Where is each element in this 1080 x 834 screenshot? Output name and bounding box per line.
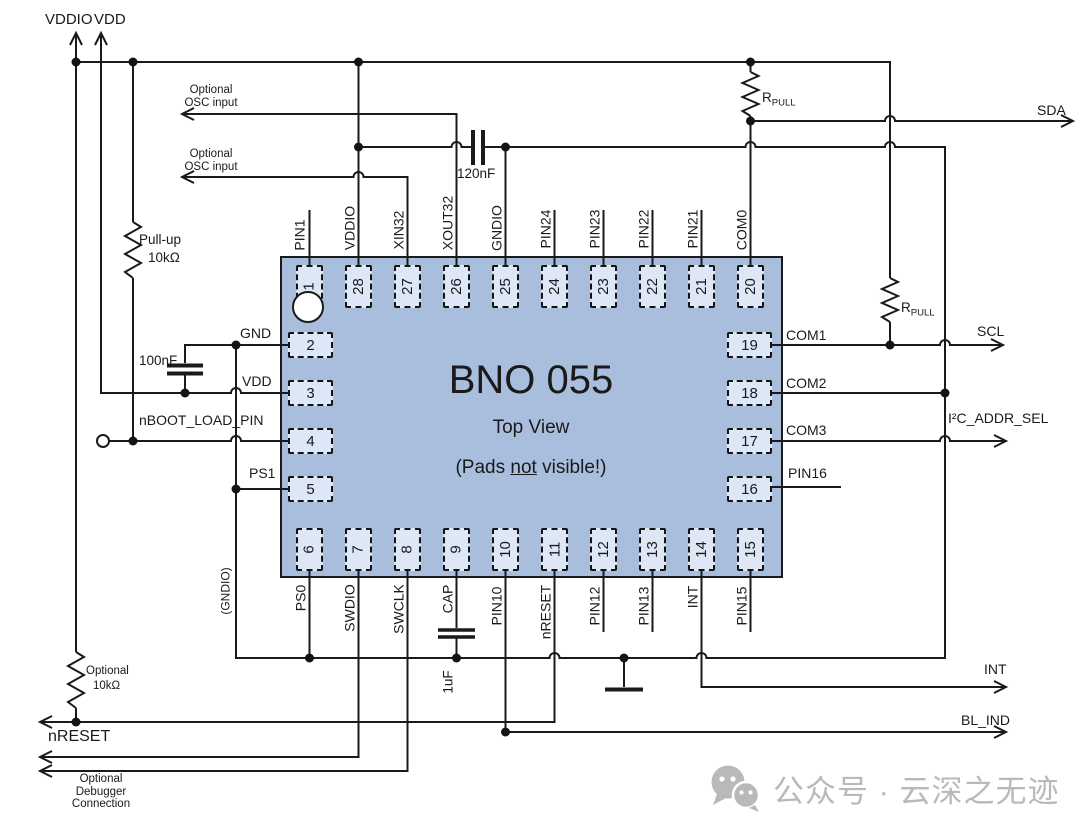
chip-note: (Pads not visible!) bbox=[449, 457, 614, 479]
chip-view-label: Top View bbox=[449, 417, 614, 439]
chip-name: BNO 055 bbox=[449, 358, 614, 403]
wire-pin10-blind bbox=[506, 571, 1007, 732]
wire-vddio-rail bbox=[76, 62, 890, 278]
watermark: 公众号 · 云深之无迹 bbox=[708, 764, 1060, 812]
wire-xin32 bbox=[183, 172, 408, 265]
resistor-pullup bbox=[125, 222, 141, 278]
schematic-canvas: VDDIO VDD OptionalOSC input OptionalOSC … bbox=[0, 0, 1080, 834]
wire-sda bbox=[751, 116, 1073, 121]
wire-swdio bbox=[41, 571, 359, 757]
cap100-plates bbox=[167, 366, 203, 374]
watermark-text: 公众号 · 云深之无迹 bbox=[773, 766, 1060, 811]
wire-vdd bbox=[101, 34, 288, 393]
resistor-rpull2 bbox=[882, 278, 898, 322]
resistor-rpull1 bbox=[743, 72, 759, 116]
cap1uf-plates bbox=[438, 630, 475, 637]
chip-title-block: BNO 055 Top View (Pads not visible!) bbox=[449, 358, 614, 479]
wire-int bbox=[702, 571, 1007, 687]
cap120-plates bbox=[473, 130, 483, 165]
resistor-optional bbox=[68, 652, 84, 708]
nboot-open-terminal bbox=[97, 435, 109, 447]
wire-nreset bbox=[41, 571, 555, 722]
wechat-icon bbox=[708, 764, 764, 812]
wire-xout32 bbox=[183, 114, 457, 265]
wire-com3 bbox=[772, 436, 1005, 441]
wire-cap100 bbox=[185, 345, 236, 393]
wire-swclk bbox=[41, 571, 408, 771]
